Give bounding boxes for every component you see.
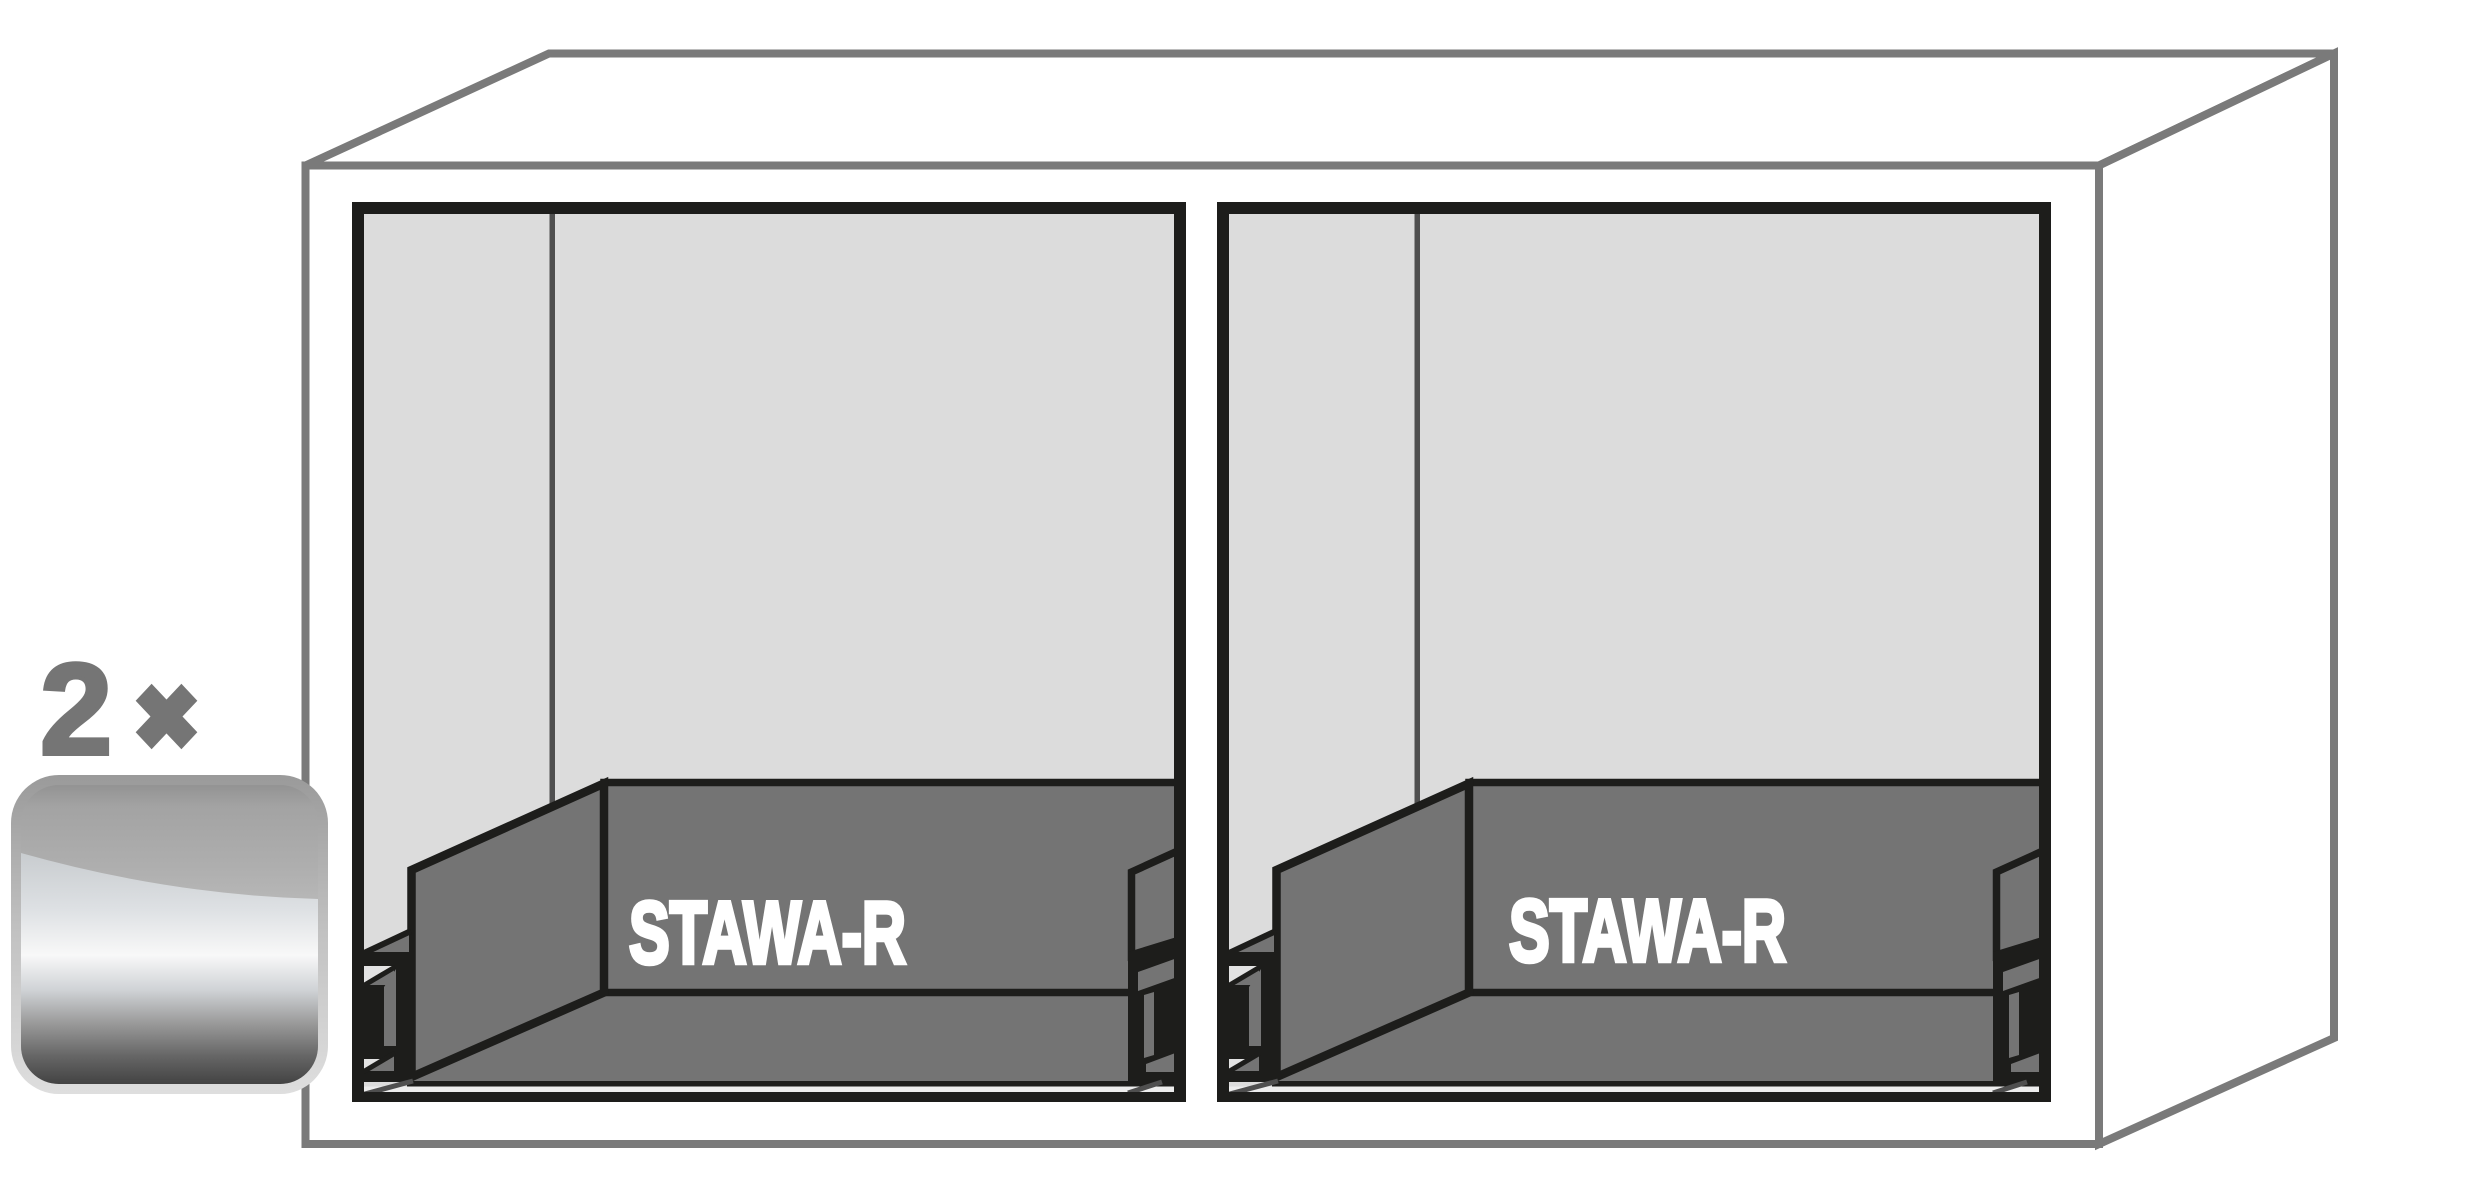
svg-text:2: 2 xyxy=(40,636,112,782)
svg-text:STAWA-R: STAWA-R xyxy=(629,883,906,982)
svg-text:STAWA-R: STAWA-R xyxy=(1509,881,1786,980)
